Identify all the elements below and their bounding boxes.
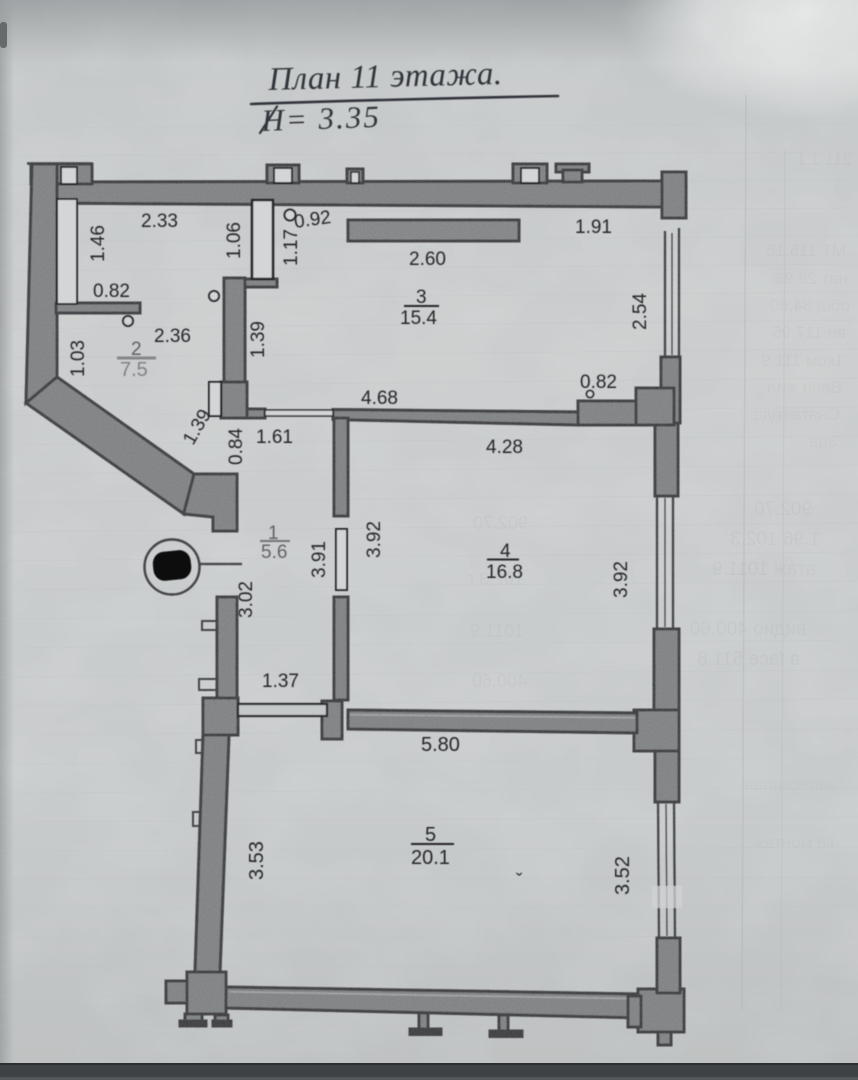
svg-text:вн 117.95: вн 117.95 [772, 323, 846, 342]
svg-text:1.46: 1.46 [88, 225, 109, 262]
svg-text:5.6: 5.6 [261, 542, 287, 563]
svg-text:4.28: 4.28 [486, 437, 523, 458]
svg-text:1ком 111.9: 1ком 111.9 [761, 351, 844, 370]
svg-text:ˇ: ˇ [516, 871, 523, 892]
svg-text:2.60: 2.60 [409, 249, 446, 270]
svg-text:4.68: 4.68 [361, 388, 398, 409]
svg-text:1011.9: 1011.9 [470, 621, 524, 641]
svg-text:1.17: 1.17 [281, 229, 302, 266]
svg-text:1.03: 1.03 [68, 340, 89, 377]
svg-text:3.53: 3.53 [246, 841, 268, 880]
svg-text:нат 28.96: нат 28.96 [774, 269, 848, 288]
svg-text:3.91: 3.91 [309, 541, 330, 578]
svg-text:2.33: 2.33 [141, 211, 178, 232]
svg-text:2.54: 2.54 [630, 293, 651, 330]
svg-text:Зцв: Зцв [809, 432, 838, 451]
svg-text:1.96 102.3: 1.96 102.3 [730, 529, 820, 550]
svg-text:ка монтаж: ка монтаж [752, 833, 834, 852]
svg-text:211 1.1: 211 1.1 [797, 150, 852, 169]
svg-text:0.82: 0.82 [93, 281, 130, 302]
svg-text:1.37: 1.37 [262, 671, 299, 692]
svg-text:видно 400.60: видно 400.60 [690, 619, 806, 640]
svg-text:3.92: 3.92 [364, 521, 385, 558]
svg-text:20.1: 20.1 [411, 847, 450, 869]
svg-text:5: 5 [425, 824, 436, 846]
svg-text:902.70: 902.70 [473, 513, 528, 533]
svg-text:Снята года: Снята года [753, 405, 840, 424]
svg-text:Н= 3.35: Н= 3.35 [260, 99, 381, 138]
svg-text:3.02: 3.02 [236, 581, 257, 618]
svg-text:3.52: 3.52 [612, 856, 634, 895]
svg-text:0.84: 0.84 [226, 428, 247, 465]
svg-text:400.60: 400.60 [472, 671, 527, 691]
svg-text:2.36: 2.36 [154, 326, 191, 347]
svg-text:запесенная: запесенная [745, 775, 836, 794]
svg-text:в face 511.8: в face 511.8 [697, 649, 800, 670]
svg-text:План 11 этажа.: План 11 этажа. [267, 56, 503, 98]
svg-text:общ 34.60: общ 34.60 [770, 296, 850, 315]
svg-text:902.70: 902.70 [754, 499, 812, 520]
svg-text:1.61: 1.61 [256, 427, 293, 448]
svg-text:0.82: 0.82 [580, 372, 617, 393]
svg-text:МТ 115.16: МТ 115.16 [766, 241, 846, 260]
svg-text:1.91: 1.91 [575, 217, 612, 238]
svg-text:1.06: 1.06 [224, 222, 245, 259]
svg-text:3.92: 3.92 [611, 561, 632, 598]
svg-text:7.5: 7.5 [120, 359, 148, 381]
svg-text:Ванн жил: Ванн жил [767, 378, 842, 397]
svg-text:атаж 1011.9: атаж 1011.9 [712, 559, 816, 580]
svg-text:плот: плот [465, 109, 500, 126]
svg-text:5.80: 5.80 [421, 734, 460, 756]
svg-text:1.39: 1.39 [248, 321, 269, 358]
svg-text:16.8: 16.8 [486, 562, 523, 583]
svg-text:3: 3 [416, 287, 427, 308]
svg-text:15.4: 15.4 [400, 308, 437, 329]
